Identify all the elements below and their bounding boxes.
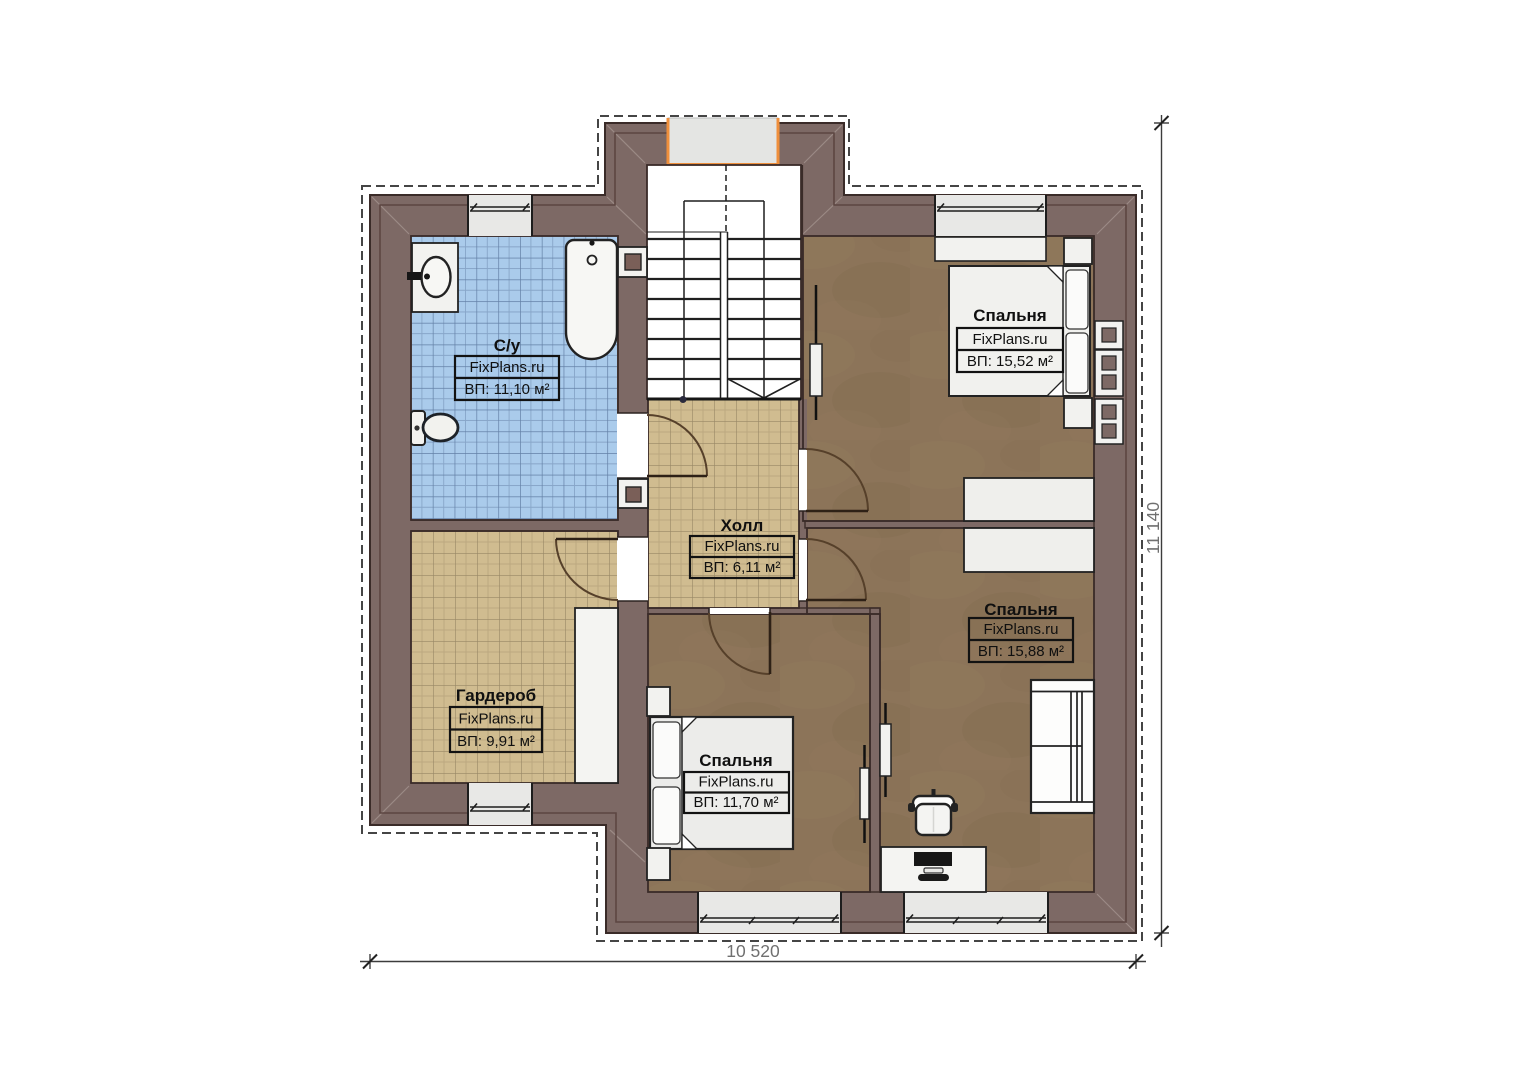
- svg-text:Гардероб: Гардероб: [456, 686, 536, 705]
- svg-text:ВП: 11,70 м²: ВП: 11,70 м²: [693, 794, 778, 811]
- svg-text:С/у: С/у: [494, 336, 521, 355]
- svg-text:ВП: 9,91 м²: ВП: 9,91 м²: [457, 733, 535, 750]
- svg-text:ВП: 11,10 м²: ВП: 11,10 м²: [464, 381, 549, 398]
- svg-text:FixPlans.ru: FixPlans.ru: [458, 711, 533, 728]
- svg-text:FixPlans.ru: FixPlans.ru: [972, 331, 1047, 348]
- svg-text:10 520: 10 520: [726, 941, 780, 961]
- svg-text:11 140: 11 140: [1143, 502, 1163, 554]
- svg-text:Спальня: Спальня: [973, 306, 1046, 325]
- svg-text:FixPlans.ru: FixPlans.ru: [983, 621, 1058, 638]
- svg-text:FixPlans.ru: FixPlans.ru: [698, 774, 773, 791]
- svg-text:FixPlans.ru: FixPlans.ru: [469, 359, 544, 376]
- svg-text:Спальня: Спальня: [984, 600, 1057, 619]
- svg-text:ВП: 15,88 м²: ВП: 15,88 м²: [978, 643, 1064, 660]
- svg-text:ВП: 15,52 м²: ВП: 15,52 м²: [967, 353, 1053, 370]
- svg-text:Холл: Холл: [721, 516, 764, 535]
- svg-text:Спальня: Спальня: [699, 751, 772, 770]
- svg-text:ВП: 6,11 м²: ВП: 6,11 м²: [704, 559, 781, 576]
- svg-text:FixPlans.ru: FixPlans.ru: [704, 538, 779, 555]
